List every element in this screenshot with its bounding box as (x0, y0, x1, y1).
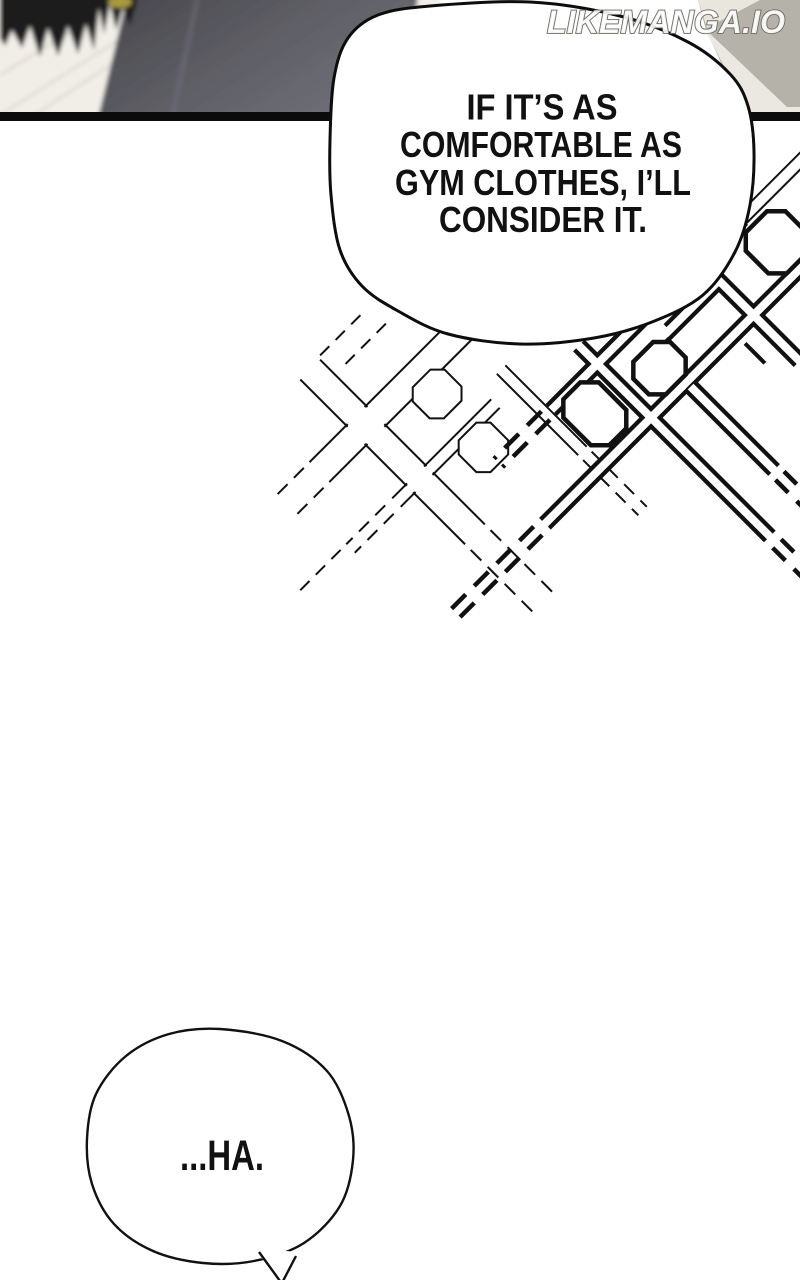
svg-text:...HA.: ...HA. (180, 1132, 264, 1180)
svg-text:GYM CLOTHES, I’LL: GYM CLOTHES, I’LL (395, 162, 691, 203)
svg-text:LIKEMANGA.IO: LIKEMANGA.IO (547, 4, 785, 40)
svg-text:COMFORTABLE AS: COMFORTABLE AS (400, 124, 682, 165)
svg-text:CONSIDER IT.: CONSIDER IT. (439, 199, 647, 240)
svg-text:IF IT’S AS: IF IT’S AS (467, 87, 618, 128)
